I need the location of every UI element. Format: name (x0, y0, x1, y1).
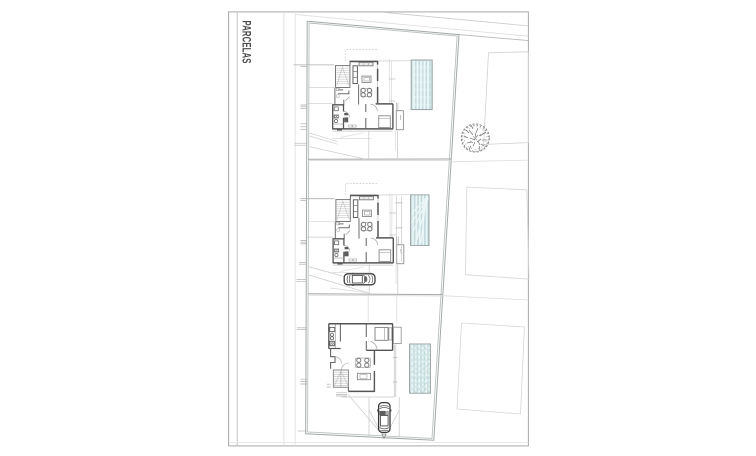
svg-text:PARCELAS: PARCELAS (239, 21, 251, 64)
